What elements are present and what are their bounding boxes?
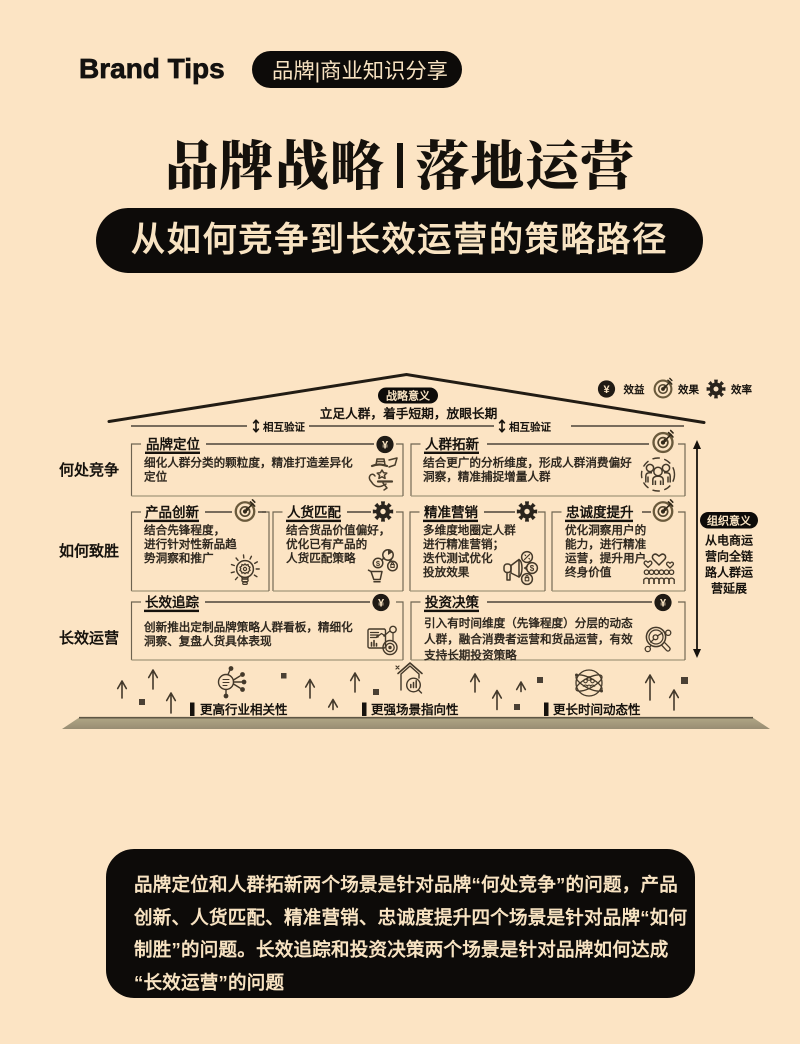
svg-text:迭代测试优化: 迭代测试优化 xyxy=(423,551,493,565)
svg-text:何处竞争: 何处竞争 xyxy=(59,461,119,479)
svg-text:人群拓新: 人群拓新 xyxy=(425,436,479,452)
svg-text:优化洞察用户的: 优化洞察用户的 xyxy=(565,523,647,537)
svg-text:投放效果: 投放效果 xyxy=(423,565,470,579)
svg-text:势洞察和推广: 势洞察和推广 xyxy=(144,551,214,565)
svg-text:效率: 效率 xyxy=(731,383,752,396)
svg-text:品牌定位: 品牌定位 xyxy=(146,436,200,452)
svg-text:引入有时间维度（先锋程度）分层的动态: 引入有时间维度（先锋程度）分层的动态 xyxy=(424,616,633,630)
svg-text:组织意义: 组织意义 xyxy=(707,514,752,528)
svg-text:人货匹配策略: 人货匹配策略 xyxy=(286,551,356,565)
svg-text:相互验证: 相互验证 xyxy=(509,421,551,434)
svg-text:路人群运: 路人群运 xyxy=(705,565,753,580)
svg-text:结合货品价值偏好，: 结合货品价值偏好， xyxy=(285,523,390,537)
svg-text:更高行业相关性: 更高行业相关性 xyxy=(200,702,288,717)
svg-text:能力，进行精准: 能力，进行精准 xyxy=(565,537,647,551)
svg-text:营向全链: 营向全链 xyxy=(705,549,754,564)
svg-text:投资决策: 投资决策 xyxy=(425,594,479,610)
svg-text:支持长期投资策略: 支持长期投资策略 xyxy=(423,648,517,662)
svg-text:立足人群，着手短期，放眼长期: 立足人群，着手短期，放眼长期 xyxy=(320,406,498,421)
svg-text:如何致胜: 如何致胜 xyxy=(59,542,119,560)
svg-text:更长时间动态性: 更长时间动态性 xyxy=(553,702,641,717)
svg-text:洞察，精准捕捉增量人群: 洞察，精准捕捉增量人群 xyxy=(423,469,551,483)
svg-text:优化已有产品的: 优化已有产品的 xyxy=(286,537,368,551)
svg-text:洞察、复盘人货具体表现: 洞察、复盘人货具体表现 xyxy=(144,634,272,648)
svg-text:精准营销: 精准营销 xyxy=(424,504,478,520)
svg-text:细化人群分类的颗粒度，精准打造差异化: 细化人群分类的颗粒度，精准打造差异化 xyxy=(144,455,353,469)
svg-text:产品创新: 产品创新 xyxy=(145,504,199,520)
svg-text:战略意义: 战略意义 xyxy=(386,389,431,403)
svg-text:长效追踪: 长效追踪 xyxy=(145,594,199,610)
svg-text:人货匹配: 人货匹配 xyxy=(287,504,341,520)
svg-text:效果: 效果 xyxy=(678,383,699,396)
svg-text:忠诚度提升: 忠诚度提升 xyxy=(566,504,634,520)
svg-text:进行精准营销；: 进行精准营销； xyxy=(423,537,504,551)
svg-text:多维度地圈定人群: 多维度地圈定人群 xyxy=(423,523,516,537)
svg-text:从电商运: 从电商运 xyxy=(705,533,753,548)
svg-text:终身价值: 终身价值 xyxy=(565,565,612,579)
svg-text:长效运营: 长效运营 xyxy=(59,629,119,647)
svg-text:营延展: 营延展 xyxy=(711,581,747,596)
svg-text:效益: 效益 xyxy=(624,383,645,396)
svg-text:人群，融合消费者运营和货品运营，有效: 人群，融合消费者运营和货品运营，有效 xyxy=(424,632,633,646)
svg-text:结合先锋程度，: 结合先锋程度， xyxy=(143,523,225,537)
svg-text:运营，提升用户: 运营，提升用户 xyxy=(565,551,646,565)
svg-text:相互验证: 相互验证 xyxy=(263,421,305,434)
svg-text:进行针对性新品趋: 进行针对性新品趋 xyxy=(144,537,237,551)
svg-text:$: $ xyxy=(530,564,535,573)
svg-text:更强场景指向性: 更强场景指向性 xyxy=(371,702,459,717)
svg-text:定位: 定位 xyxy=(143,469,168,483)
svg-text:创新推出定制品牌策略人群看板，精细化: 创新推出定制品牌策略人群看板，精细化 xyxy=(143,620,353,634)
svg-text:结合更广的分析维度，形成人群消费偏好: 结合更广的分析维度，形成人群消费偏好 xyxy=(422,455,632,469)
